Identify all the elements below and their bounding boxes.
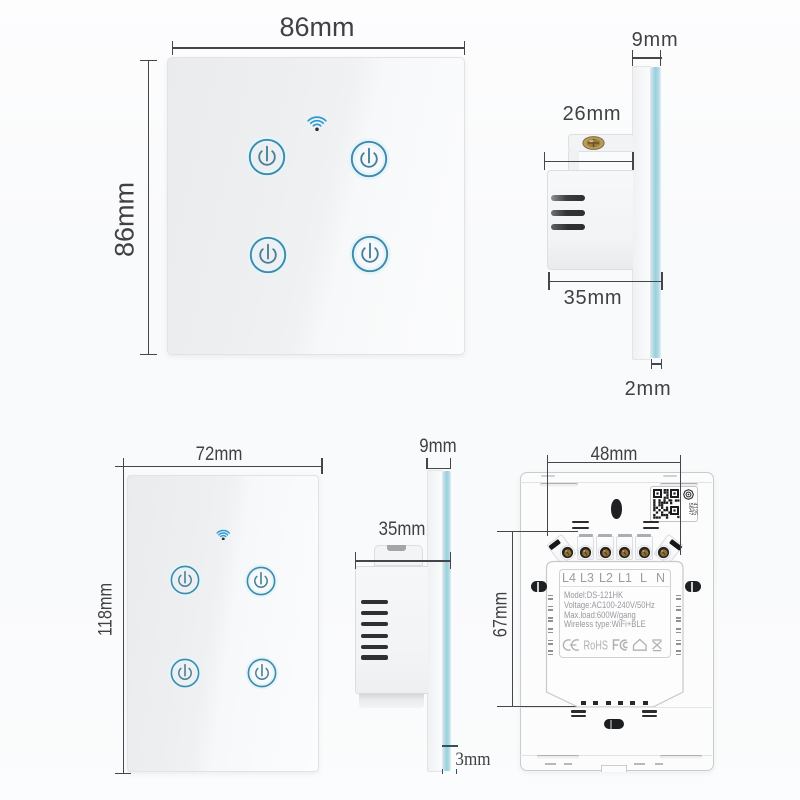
svg-text:4125: 4125	[692, 503, 698, 516]
svg-text:RoHS: RoHS	[584, 637, 609, 652]
